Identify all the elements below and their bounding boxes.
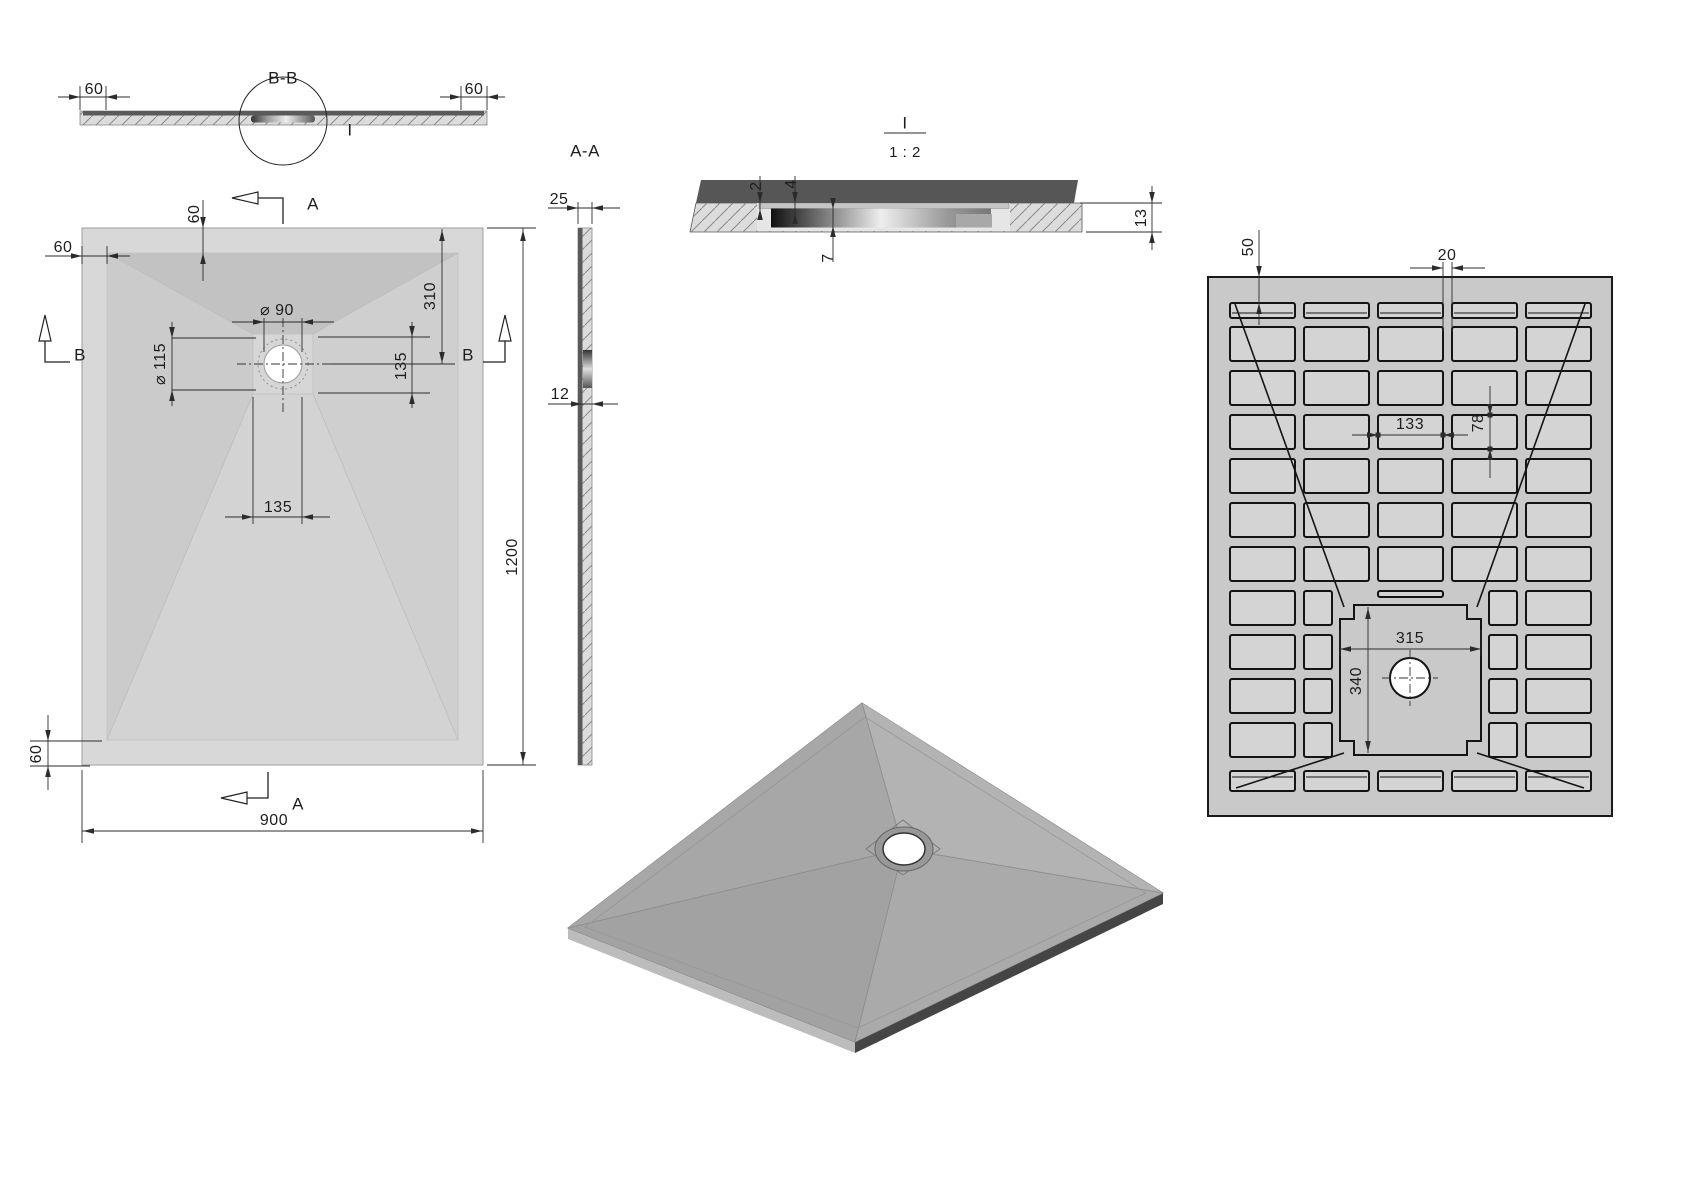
rib-pocket <box>1378 371 1443 405</box>
bb-view-label: B-B <box>268 68 298 87</box>
rib-pocket <box>1230 459 1295 493</box>
label-b-left: B <box>74 345 86 364</box>
rib-pocket <box>1378 771 1443 791</box>
dim-plan-bottom-border: 60 <box>28 745 45 764</box>
dim-flange-recess: 4 <box>783 179 800 188</box>
rib-pocket <box>1378 459 1443 493</box>
rib-pocket <box>1378 503 1443 537</box>
rib-pocket <box>1304 327 1369 361</box>
dim-pocket-width: 133 <box>1396 416 1424 433</box>
section-bb-view: B-B I 60 60 <box>80 68 487 165</box>
iso-drain-hole <box>883 833 925 865</box>
bottom-view: 50 20 133 78 315 340 <box>1208 238 1612 816</box>
dim-rib-width: 20 <box>1438 247 1457 264</box>
dim-drain-flange-dia: ⌀ 115 <box>152 343 169 385</box>
bb-top-layer <box>83 111 484 116</box>
rib-pocket <box>1489 723 1517 757</box>
rib-pocket <box>1489 635 1517 669</box>
rib-pocket <box>1230 635 1295 669</box>
section-arrow-a-bottom: A <box>221 772 304 813</box>
dim-edge-margin: 50 <box>1240 238 1257 257</box>
rib-pocket <box>1230 503 1295 537</box>
rib-pocket <box>1230 591 1295 625</box>
rib-pocket <box>1452 371 1517 405</box>
dim-drain-hole-dia: ⌀ 90 <box>260 302 294 319</box>
label-a-bottom: A <box>292 794 304 813</box>
detail-view-label: I <box>902 113 907 132</box>
detail-marker-label: I <box>347 120 352 139</box>
rib-pocket <box>1304 547 1369 581</box>
section-arrow-b-left: B <box>39 315 86 364</box>
dim-bb-right-border: 60 <box>465 81 484 98</box>
section-arrow-a-top: A <box>232 192 319 224</box>
rib-pocket <box>1526 723 1591 757</box>
dim-rim-thickness: 25 <box>550 191 569 208</box>
aa-top-layer <box>578 228 583 765</box>
rib-pocket <box>1526 503 1591 537</box>
dim-bottom-flat-width: 315 <box>1396 630 1424 647</box>
dim-center-thickness: 12 <box>551 386 570 403</box>
rib-pocket <box>1230 723 1295 757</box>
rib-pocket <box>1230 371 1295 405</box>
rib-pocket <box>1378 547 1443 581</box>
technical-drawing: B-B I 60 60 A A B <box>0 0 1697 1200</box>
arrow-b-left-icon <box>39 315 51 341</box>
detail-scale-label: 1 : 2 <box>889 144 921 161</box>
rib-pocket <box>1304 415 1369 449</box>
dim-plan-top-border: 60 <box>186 205 203 224</box>
aa-drain-cover <box>583 350 592 388</box>
rib-pocket <box>1526 459 1591 493</box>
detail-i-view: I 1 : 2 2 4 7 13 <box>690 113 1150 262</box>
rib-pocket <box>1452 547 1517 581</box>
rib-pocket <box>1230 771 1295 791</box>
dim-flat-width: 135 <box>264 499 292 516</box>
rib-pocket <box>1489 591 1517 625</box>
section-aa-view: A-A 25 12 <box>550 141 600 765</box>
rib-pocket <box>1489 679 1517 713</box>
dim-tray-length: 1200 <box>504 538 521 576</box>
rib-pocket <box>1452 327 1517 361</box>
rib-pocket <box>1378 303 1443 318</box>
dim-plan-left-border: 60 <box>54 239 73 256</box>
rib-pocket <box>1304 303 1369 318</box>
dim-pocket-height: 78 <box>1470 414 1487 433</box>
detail-cover-step <box>956 214 992 228</box>
rib-pocket <box>1526 679 1591 713</box>
rib-pocket <box>1230 547 1295 581</box>
rib-pocket <box>1378 327 1443 361</box>
dim-drain-from-top: 310 <box>422 282 439 310</box>
dim-cover-depth: 7 <box>820 253 837 262</box>
rib-pocket <box>1526 547 1591 581</box>
rib-pocket <box>1452 459 1517 493</box>
drawing-sheet: B-B I 60 60 A A B <box>0 0 1697 1200</box>
dim-tray-width: 900 <box>260 812 288 829</box>
rib-pocket <box>1526 771 1591 791</box>
rib-pocket <box>1526 591 1591 625</box>
rib-pocket <box>1304 371 1369 405</box>
rib-pocket <box>1304 591 1332 625</box>
rib-pocket <box>1304 679 1332 713</box>
arrow-a-bottom-icon <box>221 792 247 804</box>
dim-total-thickness: 13 <box>1133 209 1150 228</box>
rib-pocket <box>1304 723 1332 757</box>
rib-pocket <box>1526 635 1591 669</box>
bb-drain-cover <box>251 116 315 123</box>
dim-flat-height: 135 <box>393 352 410 380</box>
rib-pocket <box>1304 635 1332 669</box>
rib-pocket <box>1304 771 1369 791</box>
arrow-a-top-icon <box>232 192 258 204</box>
rib-pocket <box>1304 503 1369 537</box>
aa-view-label: A-A <box>570 141 600 160</box>
rib-pocket <box>1526 327 1591 361</box>
dim-top-lip: 2 <box>748 181 765 190</box>
rib-pocket <box>1304 459 1369 493</box>
label-a-top: A <box>307 194 319 213</box>
isometric-view <box>568 703 1163 1053</box>
detail-cover-flange <box>759 203 1009 209</box>
dim-bb-left-border: 60 <box>85 81 104 98</box>
rib-pocket <box>1452 771 1517 791</box>
arrow-b-right-icon <box>499 315 511 341</box>
rib-pocket <box>1230 327 1295 361</box>
rib-pocket <box>1378 591 1443 597</box>
rib-pocket <box>1230 679 1295 713</box>
plan-view: A A B B 60 60 ⌀ 90 ⌀ 115 310 135 135 120… <box>28 192 521 829</box>
dim-bottom-flat-height: 340 <box>1348 667 1365 695</box>
label-b-right: B <box>462 345 474 364</box>
rib-pocket <box>1452 303 1517 318</box>
